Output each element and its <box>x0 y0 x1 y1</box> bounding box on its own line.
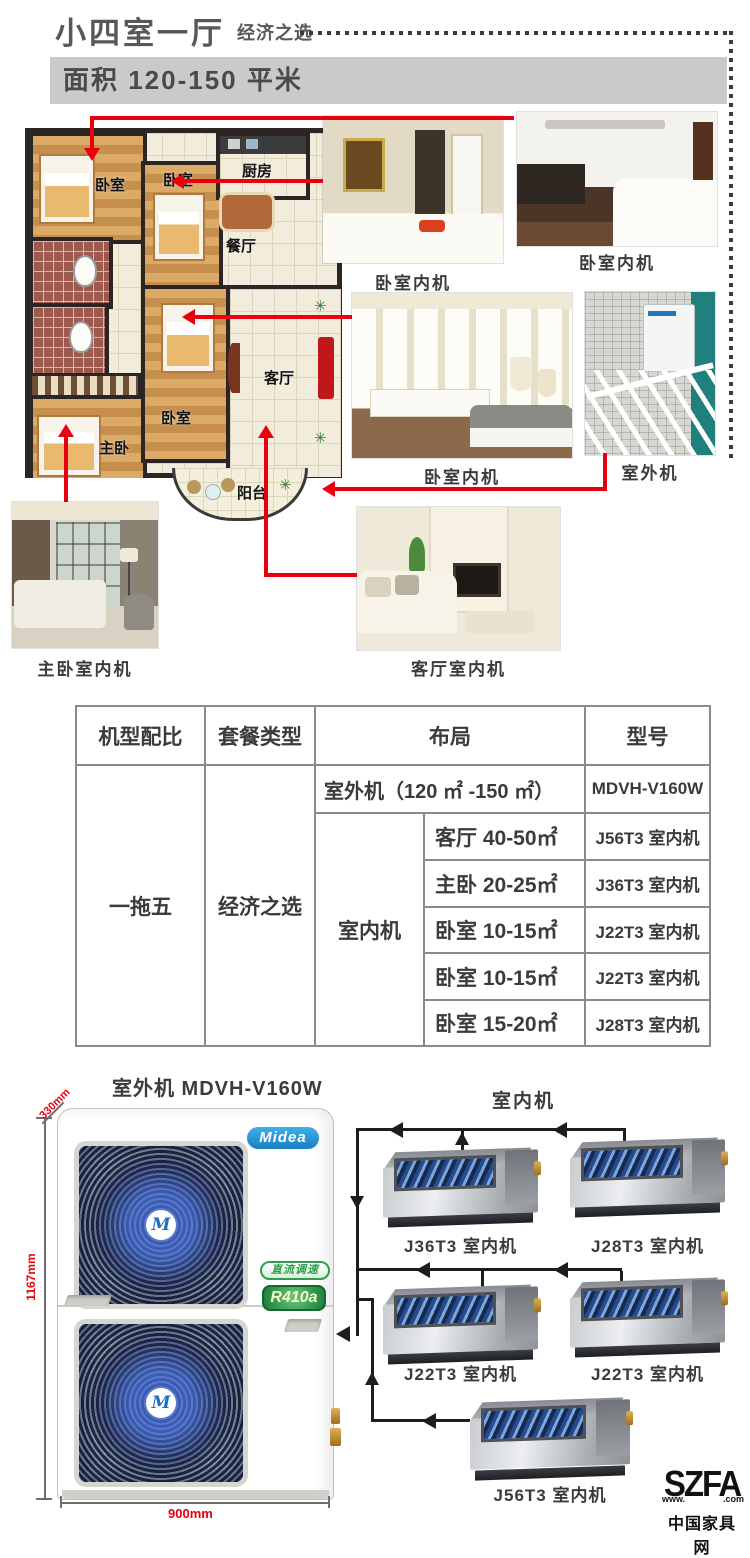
pipe-stub-j22a <box>481 1271 484 1287</box>
pipe-arrow-left-icon <box>416 1262 430 1278</box>
photo-label-2: 卧室内机 <box>517 249 717 274</box>
room-bath-2 <box>29 303 109 379</box>
table-header-package: 套餐类型 <box>205 706 315 765</box>
table-header-model: 型号 <box>585 706 710 765</box>
firebox <box>453 563 501 597</box>
photo-label-5: 主卧室内机 <box>12 655 158 680</box>
room-label-dining: 餐厅 <box>226 235 256 256</box>
fan-grille-bottom: M <box>74 1319 248 1487</box>
cell-room-2: 卧室 10-15㎡ <box>424 907 585 953</box>
pipe-arrow-left-icon <box>554 1262 568 1278</box>
bed-white <box>14 580 106 628</box>
photo-bedroom-3 <box>352 293 572 458</box>
dim-tick <box>36 1498 52 1500</box>
photo-bedroom-1 <box>323 116 503 263</box>
spec-table: 机型配比 套餐类型 布局 型号 一拖五 经济之选 室外机（120 ㎡ -150 … <box>75 705 711 1047</box>
unit-base <box>62 1490 329 1499</box>
photo-master-bedroom <box>12 502 158 648</box>
pipe-arrow-left-icon <box>553 1122 567 1138</box>
cell-room-3: 卧室 10-15㎡ <box>424 953 585 1000</box>
szfa-com: .com <box>723 1494 744 1504</box>
red-arrow-bedroom1-icon <box>84 148 100 161</box>
outdoor-unit-image: M M Midea 直流调速 R410a <box>57 1108 334 1500</box>
indoor-unit-label-j36: J36T3 室内机 <box>383 1232 538 1257</box>
plant-icon: ✳ <box>314 297 327 315</box>
photo-living-room <box>357 507 560 650</box>
dotted-line-horizontal <box>300 31 733 35</box>
red-line-outdoor-vert <box>603 453 607 489</box>
cell-outdoor-layout: 室外机（120 ㎡ -150 ㎡） <box>315 765 585 813</box>
dim-tick <box>328 1496 330 1508</box>
vent-slot <box>284 1319 322 1332</box>
photo-label-3: 卧室内机 <box>352 463 572 488</box>
wall-art <box>343 138 385 192</box>
szfa-www: www. <box>662 1494 685 1504</box>
ac-outdoor-box <box>643 304 695 372</box>
cell-package-type: 经济之选 <box>205 765 315 1046</box>
refrigerant-badge: R410a <box>262 1285 326 1311</box>
pipe-arrow-left-icon <box>389 1122 403 1138</box>
cell-room-0: 客厅 40-50㎡ <box>424 813 585 860</box>
door-light <box>451 134 483 222</box>
room-master: 主卧 <box>29 395 147 478</box>
indoor-unit-image-j36 <box>383 1147 538 1227</box>
lamp-shade <box>510 357 532 391</box>
outdoor-unit-title: 室外机 MDVH-V160W <box>112 1072 323 1101</box>
bed-white <box>613 178 717 246</box>
dim-height: 1167mm <box>24 1248 38 1306</box>
lamp-shade <box>120 548 138 562</box>
pipe-arrow-down-icon <box>350 1196 364 1209</box>
fan-hub-mark: M <box>146 1210 176 1240</box>
pipe-branch-vertical <box>371 1298 374 1422</box>
pipe-arrow-to-outdoor-icon <box>336 1326 350 1342</box>
door-dark <box>415 130 445 222</box>
red-line-living-horiz <box>264 573 357 577</box>
dining-table <box>222 195 272 229</box>
fan-hub-mark: M <box>146 1388 176 1418</box>
lamp-shade <box>538 369 556 397</box>
table-header-layout: 布局 <box>315 706 585 765</box>
table-header-ratio: 机型配比 <box>76 706 205 765</box>
red-line-top <box>90 116 514 120</box>
dc-badge: 直流调速 <box>260 1261 330 1280</box>
room-label-kitchen: 厨房 <box>242 160 272 181</box>
szfa-logo: SZFA www. .com 中国家具网 <box>660 1468 744 1558</box>
bed-white <box>323 214 503 263</box>
doorway <box>693 122 713 180</box>
room-balcony: 阳台 ✳ <box>172 468 308 521</box>
indoor-unit-image-j56 <box>470 1397 630 1481</box>
indoor-unit-label-j22b: J22T3 室内机 <box>570 1360 725 1385</box>
coffee-table <box>465 611 535 633</box>
bed-gray <box>470 405 572 447</box>
cushion <box>365 577 391 597</box>
photo-bedroom-2 <box>517 112 717 246</box>
cell-room-1: 主卧 20-25㎡ <box>424 860 585 907</box>
tv-cabinet <box>228 343 240 393</box>
cell-outdoor-model: MDVH-V160W <box>585 765 710 813</box>
pipe-stub-j22b <box>620 1271 623 1281</box>
room-label-balcony: 阳台 <box>237 482 267 503</box>
indoor-unit-label-j28: J28T3 室内机 <box>570 1232 725 1257</box>
sofa <box>318 337 334 399</box>
red-line-bedroom3 <box>194 315 352 319</box>
cell-model-0: J56T3 室内机 <box>585 813 710 860</box>
plant-icon <box>409 537 425 571</box>
cushion <box>395 575 419 595</box>
indoor-unit-label-j56: J56T3 室内机 <box>470 1481 630 1506</box>
area-bar: 面积 120-150 平米 <box>50 57 727 104</box>
midea-logo: Midea <box>247 1127 319 1149</box>
cell-model-2: J22T3 室内机 <box>585 907 710 953</box>
indoor-unit-image-j22b <box>570 1277 725 1357</box>
room-label-living: 客厅 <box>264 367 294 388</box>
cell-indoor-label: 室内机 <box>315 813 424 1046</box>
room-label-bedroom-1: 卧室 <box>95 174 125 195</box>
fan-grille-top: M <box>74 1141 248 1309</box>
dotted-line-vertical <box>729 31 733 459</box>
red-line-living-vert <box>264 437 268 577</box>
room-bath-1 <box>29 237 113 309</box>
ceiling <box>352 293 572 309</box>
cell-model-3: J22T3 室内机 <box>585 953 710 1000</box>
dim-line-height <box>44 1118 46 1500</box>
photo-label-6: 客厅室内机 <box>357 655 560 680</box>
sideboard <box>517 164 585 204</box>
ceiling-vent <box>545 120 665 129</box>
room-label-bedroom-3: 卧室 <box>161 407 191 428</box>
room-living: 客厅 ✳ ✳ <box>226 285 341 477</box>
plant-icon: ✳ <box>314 429 327 447</box>
indoor-unit-image-j22a <box>383 1284 538 1364</box>
cell-model-1: J36T3 室内机 <box>585 860 710 907</box>
photo-label-1: 卧室内机 <box>323 269 503 294</box>
cell-model-4: J28T3 室内机 <box>585 1000 710 1046</box>
vent-slot <box>64 1295 112 1306</box>
indoor-unit-title: 室内机 <box>492 1086 555 1113</box>
dim-line-width <box>60 1502 330 1504</box>
dim-tick <box>60 1496 62 1508</box>
cell-model-ratio: 一拖五 <box>76 765 205 1046</box>
valve <box>331 1408 340 1424</box>
plant-icon: ✳ <box>279 476 292 494</box>
room-label-master: 主卧 <box>99 437 129 458</box>
room-kitchen: 厨房 <box>216 132 310 200</box>
cell-room-4: 卧室 15-20㎡ <box>424 1000 585 1046</box>
red-arrow-balcony-icon <box>322 481 335 497</box>
pipe-stub-j28 <box>623 1131 626 1141</box>
szfa-site-name: 中国家具网 <box>660 1510 744 1558</box>
photo-outdoor-unit <box>585 292 715 455</box>
red-line-top-drop <box>90 116 94 150</box>
pipe-arrow-up-icon <box>455 1132 469 1145</box>
indoor-unit-label-j22a: J22T3 室内机 <box>383 1360 538 1385</box>
red-line-outdoor-horiz <box>334 487 607 491</box>
indoor-unit-image-j28 <box>570 1137 725 1217</box>
dim-width: 900mm <box>168 1506 213 1521</box>
armchair <box>124 594 154 630</box>
page-title: 小四室一厅 <box>55 8 225 53</box>
valve <box>330 1428 341 1446</box>
red-line-bedroom2 <box>183 179 323 183</box>
pipe-main-vertical <box>356 1128 359 1336</box>
red-pillow <box>419 220 445 232</box>
pipe-mid-horizontal <box>356 1268 622 1271</box>
ceiling <box>12 502 158 520</box>
pipe-bottom-horizontal <box>371 1419 470 1422</box>
pipe-arrow-left-icon <box>422 1413 436 1429</box>
red-line-master <box>64 436 68 502</box>
pipe-arrow-up-icon <box>365 1372 379 1385</box>
